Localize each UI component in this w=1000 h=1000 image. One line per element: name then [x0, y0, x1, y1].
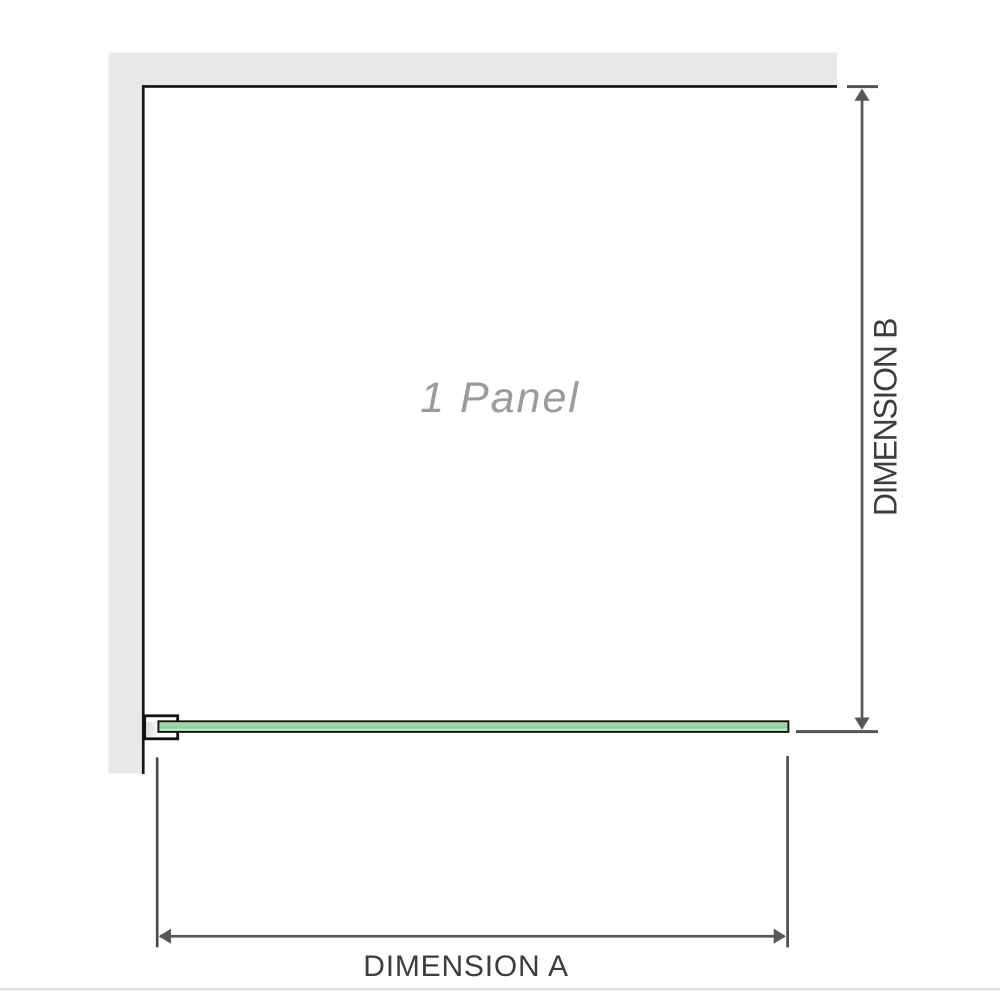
svg-text:DIMENSION B: DIMENSION B — [868, 319, 904, 516]
svg-text:1 Panel: 1 Panel — [420, 374, 580, 422]
svg-text:DIMENSION A: DIMENSION A — [363, 950, 569, 983]
